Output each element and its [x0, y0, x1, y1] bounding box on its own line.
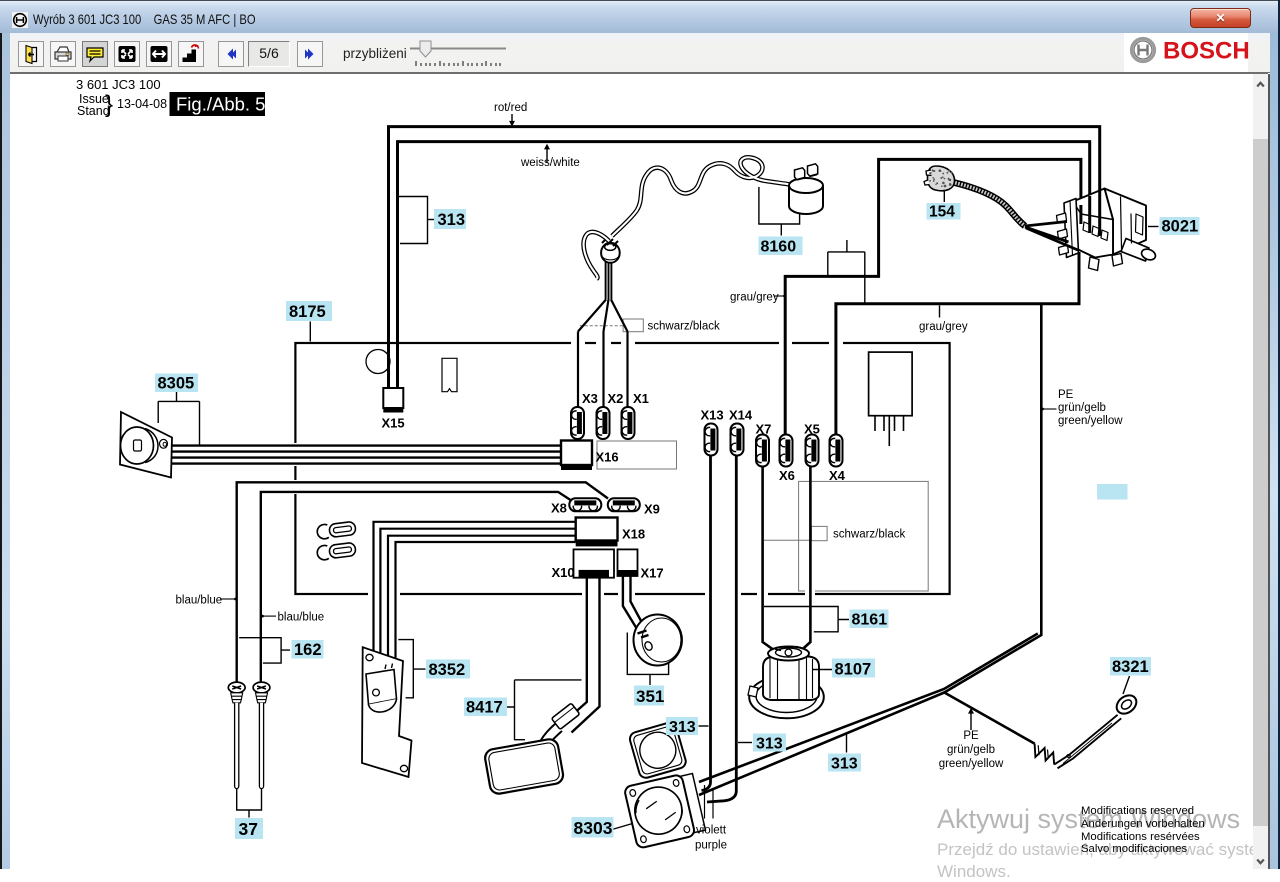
svg-text:rot/red: rot/red	[494, 102, 527, 114]
svg-text:13-04-08: 13-04-08	[117, 97, 167, 111]
svg-text:313: 313	[438, 211, 466, 229]
svg-text:PE: PE	[963, 730, 979, 742]
svg-text:8352: 8352	[429, 661, 466, 679]
svg-text:162: 162	[294, 641, 322, 659]
svg-text:3 601 JC3 100: 3 601 JC3 100	[76, 77, 161, 92]
svg-text:X10: X10	[552, 565, 575, 580]
svg-text:X1: X1	[633, 391, 649, 406]
svg-text:X8: X8	[551, 501, 567, 516]
svg-text:8417: 8417	[466, 699, 503, 717]
svg-text:351: 351	[636, 687, 664, 706]
svg-text:8303: 8303	[574, 818, 613, 838]
svg-text:X4: X4	[829, 468, 846, 483]
svg-text:Fig./Abb. 5: Fig./Abb. 5	[176, 94, 265, 115]
svg-text:X18: X18	[622, 527, 645, 542]
svg-text:PE: PE	[1058, 389, 1074, 401]
svg-text:violett: violett	[696, 825, 727, 837]
svg-text:X2: X2	[608, 391, 624, 406]
svg-text:X6: X6	[779, 468, 795, 483]
svg-text:X9: X9	[644, 502, 660, 517]
svg-text:grau/grey: grau/grey	[730, 292, 779, 304]
svg-text:weiss/white: weiss/white	[520, 157, 580, 169]
svg-text:purple: purple	[695, 840, 727, 852]
svg-text:}: }	[105, 91, 113, 118]
svg-text:313: 313	[756, 736, 783, 753]
svg-text:8305: 8305	[158, 375, 195, 393]
svg-text:313: 313	[669, 719, 696, 736]
svg-text:X17: X17	[641, 566, 664, 581]
svg-text:blau/blue: blau/blue	[278, 612, 325, 624]
svg-text:8160: 8160	[761, 239, 797, 256]
svg-text:8107: 8107	[835, 661, 872, 679]
svg-text:8161: 8161	[852, 612, 888, 629]
svg-text:X16: X16	[596, 450, 619, 465]
svg-text:8021: 8021	[1162, 218, 1199, 236]
svg-text:grau/grey: grau/grey	[919, 321, 968, 333]
svg-text:grün/gelb: grün/gelb	[947, 744, 995, 756]
svg-text:X3: X3	[582, 391, 598, 406]
svg-text:blau/blue: blau/blue	[176, 595, 223, 607]
svg-text:green/yellow: green/yellow	[1058, 415, 1123, 427]
svg-text:grün/gelb: grün/gelb	[1058, 402, 1106, 414]
svg-text:8321: 8321	[1112, 658, 1149, 676]
svg-text:X15: X15	[382, 416, 405, 431]
svg-text:green/yellow: green/yellow	[939, 758, 1004, 770]
svg-text:X5: X5	[804, 422, 820, 437]
svg-text:37: 37	[239, 819, 258, 839]
svg-text:BOSCH: BOSCH	[1163, 38, 1250, 65]
svg-text:313: 313	[831, 756, 858, 773]
svg-text:8175: 8175	[289, 303, 326, 321]
svg-text:schwarz/black: schwarz/black	[833, 529, 905, 541]
svg-text:X14: X14	[729, 408, 753, 423]
svg-text:X13: X13	[701, 408, 724, 423]
svg-text:X7: X7	[756, 422, 772, 437]
svg-text:schwarz/black: schwarz/black	[648, 321, 720, 333]
svg-text:154: 154	[929, 204, 955, 221]
